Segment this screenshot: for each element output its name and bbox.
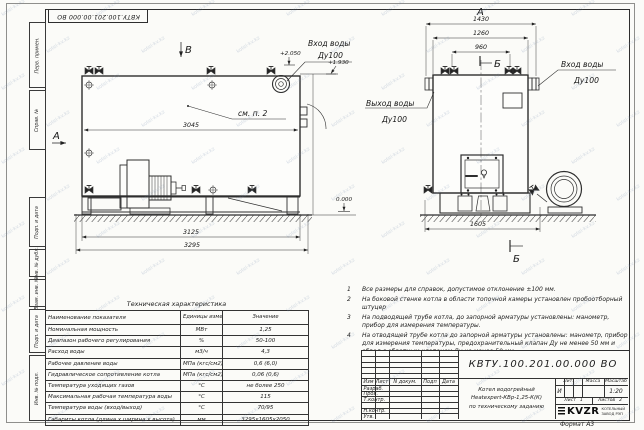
fan-blower <box>547 172 583 214</box>
table-row: Диапазон рабочего регулирования%50-100 <box>46 336 309 347</box>
col-data: Дата <box>439 378 458 385</box>
table-row: Расход водым3/ч4,3 <box>46 347 309 358</box>
table-row: Рабочее давление водыМПа (кгс/см2)0,6 (6… <box>46 358 309 369</box>
valve-icon <box>85 67 93 74</box>
boiler-side-view <box>52 42 356 254</box>
dim-960: 960 <box>475 44 487 51</box>
lit-value: И <box>555 385 564 397</box>
product-description: Котел водогрейный Heatexpert-КВр-1,25-К(… <box>458 378 555 419</box>
table-row: Температура уходящих газов°Сне более 250 <box>46 380 309 391</box>
col-podp: Подп <box>421 378 439 385</box>
tech-table-title: Техническая характеристика <box>45 300 308 308</box>
col-izm: Изм <box>362 378 375 385</box>
dim-1605: 1605 <box>470 221 486 228</box>
sheets-cell: Листов 2 <box>592 397 628 404</box>
dim-1430: 1430 <box>473 16 489 23</box>
view-label-a: А <box>52 131 60 142</box>
section-label-b-bottom: Б <box>513 254 520 265</box>
see-note-label: см. п. 2 <box>238 109 268 118</box>
view-label-b: В <box>185 45 192 56</box>
scale-value: 1:20 <box>604 385 628 397</box>
dim-3125: 3125 <box>183 229 199 236</box>
inlet-water-label: Вход воды <box>561 60 603 69</box>
scale-header: Масштаб <box>604 378 628 385</box>
table-header-row: Наименование показателя Единицы измерени… <box>46 311 309 325</box>
level-1930: +1.930 <box>328 60 349 66</box>
col-ndokum: N докум. <box>389 378 421 385</box>
sheet-cell: Лист 1 <box>555 397 592 404</box>
note-item: 2На боковой стенке котла в области топоч… <box>347 296 629 313</box>
table-row: Габариты котла (длина х ширина х высота)… <box>46 414 309 425</box>
row-tkontr: Т.контр. <box>364 397 386 403</box>
dim-1260: 1260 <box>473 30 489 37</box>
boiler-front-view <box>365 24 616 252</box>
dim-3045: 3045 <box>183 122 199 129</box>
valve-icon <box>505 67 513 74</box>
table-row: Максимальная рабочая температура воды°С1… <box>46 392 309 403</box>
inlet-water-dn: Ду100 <box>317 51 343 60</box>
level-2050: +2.050 <box>280 51 301 57</box>
tech-table: Наименование показателя Единицы измерени… <box>45 310 309 426</box>
col-list: Лист <box>375 378 389 385</box>
drawing-sheet: Перв. примен. Справ. № Подп. и дата Инв.… <box>0 0 644 430</box>
ground-hatch <box>420 216 596 223</box>
lit-header: Лит. <box>555 378 582 385</box>
level-0000: 0.000 <box>336 197 352 203</box>
outlet-water-label: Выход воды <box>366 99 414 108</box>
logo-subtitle: КОТЕЛЬНЫЙ ЗАВОД РЭП <box>601 407 625 416</box>
inlet-water-label: Вход воды <box>308 39 350 48</box>
table-row: Температура воды (вход/выход)°С70/95 <box>46 403 309 414</box>
table-row: Номинальная мощностьМВт1,25 <box>46 325 309 336</box>
valve-icon <box>513 67 521 74</box>
logo-bars-icon <box>558 407 565 416</box>
valve-icon <box>424 186 432 193</box>
note-item: 1Все размеры для справок, допустимое отк… <box>347 286 629 294</box>
valve-icon <box>95 67 103 74</box>
format-label: Формат А3 <box>560 421 594 428</box>
note-item: 3На подводящей трубе котла, до запорной … <box>347 314 629 331</box>
ground-hatch <box>74 216 312 223</box>
outlet-water-dn: Ду100 <box>381 115 407 124</box>
title-block: КВТУ.100.201.00.000 ВО Изм Лист N докум.… <box>361 350 630 421</box>
row-utv: Утв. <box>364 414 375 420</box>
section-label-b-top: Б <box>494 59 501 70</box>
valve-icon <box>441 67 449 74</box>
company-logo: KVZR КОТЕЛЬНЫЙ ЗАВОД РЭП <box>555 404 628 419</box>
notes-list: 1Все размеры для справок, допустимое отк… <box>347 286 629 358</box>
table-row: Гидравлическое сопротивление котлаМПа (к… <box>46 369 309 380</box>
valve-icon <box>450 67 458 74</box>
doc-number: КВТУ.100.201.00.000 ВО <box>458 351 628 378</box>
valve-icon <box>267 67 275 74</box>
valve-icon <box>207 67 215 74</box>
dim-3295: 3295 <box>184 242 200 249</box>
mass-header: Масса <box>582 378 604 385</box>
inlet-water-dn: Ду100 <box>573 76 599 85</box>
